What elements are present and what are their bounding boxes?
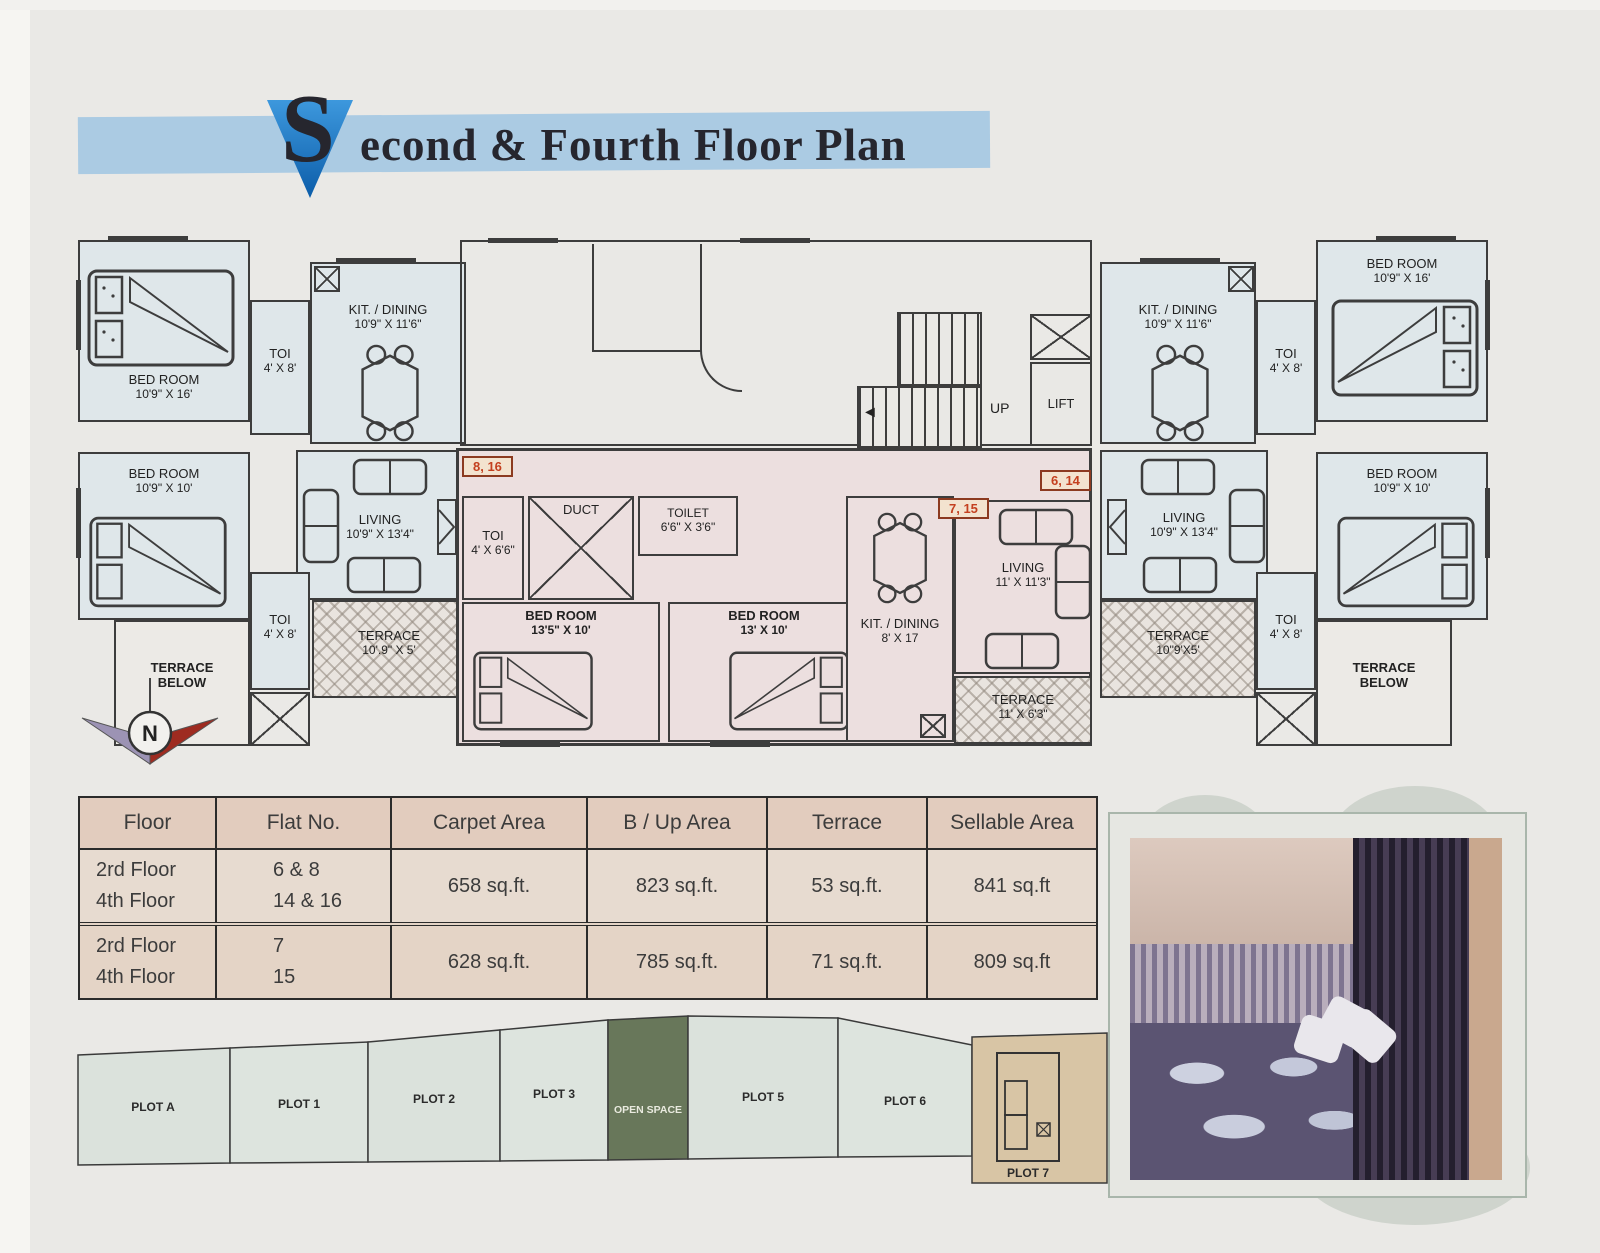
room-toilet-center: TOILET6'6" X 3'6" <box>638 496 738 556</box>
room-bedroom-right-top: BED ROOM10'9" X 16' <box>1316 240 1488 422</box>
duct-icon <box>1256 692 1316 746</box>
room-label: TOI4' X 8' <box>1258 612 1314 641</box>
sofa-icon <box>1142 556 1218 594</box>
stairs-direction-arrow-icon: ◄ <box>862 404 878 422</box>
bup-cell: 785 sq.ft. <box>588 926 768 998</box>
room-label: TOI4' X 6'6" <box>464 528 522 557</box>
window-mark <box>500 742 560 747</box>
stairs-upper-flight <box>897 312 982 386</box>
room-label: LIVING10'9" X 13'4" <box>1102 510 1266 539</box>
bed-icon <box>472 644 594 738</box>
room-toi-left-bottom: TOI4' X 8' <box>250 572 310 690</box>
sofa-icon <box>998 508 1074 546</box>
bed-icon <box>1330 298 1480 398</box>
room-bedroom-left-bottom: BED ROOM10'9" X 10' <box>78 452 250 620</box>
room-living-left: LIVING10'9" X 13'4" <box>296 450 464 600</box>
room-living-center: LIVING11' X 11'3" <box>954 500 1092 674</box>
terrace-right: TERRACE10"9'X5' <box>1100 600 1256 698</box>
col-header: Floor <box>80 798 217 848</box>
plot-label: PLOT 3 <box>533 1087 575 1101</box>
room-label: TOI4' X 8' <box>252 346 308 375</box>
open-space-label: OPEN SPACE <box>614 1104 682 1116</box>
corridor: ◄ UP LIFT <box>460 240 1092 446</box>
open-space-shape <box>608 1016 688 1160</box>
room-label: KIT. / DINING8' X 17 <box>848 616 952 645</box>
bup-cell: 823 sq.ft. <box>588 850 768 922</box>
scan-edge <box>0 0 30 1253</box>
window-mark <box>740 238 810 243</box>
window-mark <box>1376 236 1456 241</box>
window-mark <box>710 742 770 747</box>
plot-6-shape <box>838 1018 972 1157</box>
bed-icon <box>1336 510 1476 614</box>
scan-edge <box>0 0 1600 10</box>
table-header-row: Floor Flat No. Carpet Area B / Up Area T… <box>80 798 1096 848</box>
window-mark <box>108 236 188 241</box>
room-bedroom-right-bottom: BED ROOM10'9" X 10' <box>1316 452 1488 620</box>
page-title: econd & Fourth Floor Plan <box>360 119 907 171</box>
dining-table-icon <box>860 512 940 604</box>
duct-icon <box>1228 266 1254 292</box>
plot-5-shape <box>688 1016 838 1159</box>
sofa-icon <box>352 458 428 496</box>
room-bedroom-center-1: BED ROOM13'5" X 10' <box>462 602 660 742</box>
flat-number-flag: 6, 14 <box>1040 470 1091 491</box>
sellable-cell: 841 sq.ft <box>928 850 1096 922</box>
room-toi-right-bottom: TOI4' X 8' <box>1256 572 1316 690</box>
room-bedroom-center-2: BED ROOM13' X 10' <box>668 602 860 742</box>
room-label: BED ROOM13'5" X 10' <box>464 608 658 637</box>
carpet-cell: 658 sq.ft. <box>392 850 588 922</box>
room-toi-right-top: TOI4' X 8' <box>1256 300 1316 435</box>
bedroom-photo <box>1130 838 1502 1180</box>
table-row: 2rd Floor4th Floor 6 & 814 & 16 658 sq.f… <box>80 848 1096 922</box>
duct-icon <box>920 714 946 738</box>
sofa-icon <box>1140 458 1216 496</box>
corridor-alcove <box>592 244 702 352</box>
plot-label: PLOT 2 <box>413 1092 455 1106</box>
flat-number-flag: 8, 16 <box>462 456 513 477</box>
col-header: Terrace <box>768 798 928 848</box>
room-label: TOI4' X 8' <box>1258 346 1314 375</box>
room-label: BED ROOM10'9" X 16' <box>1318 256 1486 285</box>
duct-icon <box>314 266 340 292</box>
duct-icon <box>250 692 310 746</box>
sellable-cell: 809 sq.ft <box>928 926 1096 998</box>
bed-icon <box>728 644 850 738</box>
col-header: Sellable Area <box>928 798 1096 848</box>
room-label: KIT. / DINING10'9" X 11'6" <box>1102 302 1254 331</box>
compass-letter: N <box>142 721 158 746</box>
room-kitdining-center: KIT. / DINING8' X 17 <box>846 496 954 742</box>
room-kitdining-right: KIT. / DINING10'9" X 11'6" <box>1100 262 1256 444</box>
terrace-left: TERRACE10'.9" X 5' <box>312 600 466 698</box>
col-header: Carpet Area <box>392 798 588 848</box>
lift-label: LIFT <box>1032 396 1090 411</box>
window-mark <box>1140 258 1220 263</box>
terrace-center: TERRACE11' X 6'3" <box>954 676 1092 744</box>
duct-label: DUCT <box>530 502 632 517</box>
window-mark <box>488 238 558 243</box>
room-label: KIT. / DINING10'9" X 11'6" <box>312 302 464 331</box>
window-mark <box>1485 280 1490 350</box>
sofa-icon <box>984 632 1060 670</box>
lift: LIFT <box>1030 362 1092 446</box>
room-label: TOI4' X 8' <box>252 612 308 641</box>
photo-right-wall <box>1469 838 1502 1180</box>
dining-table-icon <box>1138 344 1222 442</box>
window-mark <box>76 280 81 350</box>
room-living-right: LIVING10'9" X 13'4" <box>1100 450 1268 600</box>
room-label: TERRACE11' X 6'3" <box>956 692 1090 721</box>
floor-cell: 2rd Floor4th Floor <box>80 926 217 998</box>
duct-box: DUCT <box>528 496 634 600</box>
flat-cell: 6 & 814 & 16 <box>217 850 392 922</box>
plot-label: PLOT A <box>131 1100 175 1114</box>
col-header: Flat No. <box>217 798 392 848</box>
plot-map: PLOT A PLOT 1 PLOT 2 PLOT 3 OPEN SPACE P… <box>75 1005 1115 1190</box>
table-row: 2rd Floor4th Floor 715 628 sq.ft. 785 sq… <box>80 922 1096 998</box>
door-arc <box>700 350 742 392</box>
dining-table-icon <box>348 344 432 442</box>
area-table: Floor Flat No. Carpet Area B / Up Area T… <box>78 796 1098 1000</box>
room-label: TOILET6'6" X 3'6" <box>640 506 736 534</box>
floor-cell: 2rd Floor4th Floor <box>80 850 217 922</box>
room-label: BED ROOM10'9" X 16' <box>80 372 248 401</box>
room-kitdining-left: KIT. / DINING10'9" X 11'6" <box>310 262 466 444</box>
room-label: BED ROOM13' X 10' <box>670 608 858 637</box>
bed-icon <box>86 268 236 368</box>
window-mark <box>76 488 81 558</box>
plot-label: PLOT 5 <box>742 1090 784 1104</box>
col-header: B / Up Area <box>588 798 768 848</box>
room-label: TERRACEBELOW <box>1318 660 1450 691</box>
logo-letter: S <box>281 80 335 177</box>
terrace-below-right: TERRACEBELOW <box>1316 620 1452 746</box>
window-mark <box>1485 488 1490 558</box>
photo-iron-screen <box>1353 838 1468 1180</box>
room-label: TERRACE10"9'X5' <box>1102 628 1254 657</box>
north-compass-icon: N <box>60 678 240 773</box>
plot-label: PLOT 6 <box>884 1094 926 1108</box>
room-toi-left-top: TOI4' X 8' <box>250 300 310 435</box>
carpet-cell: 628 sq.ft. <box>392 926 588 998</box>
room-label: LIVING10'9" X 13'4" <box>298 512 462 541</box>
window-mark <box>336 258 416 263</box>
brochure-page: S econd & Fourth Floor Plan BED ROOM10'9… <box>0 0 1600 1253</box>
flat-cell: 715 <box>217 926 392 998</box>
terrace-cell: 53 sq.ft. <box>768 850 928 922</box>
plot-label: PLOT 1 <box>278 1097 320 1111</box>
room-toi-center: TOI4' X 6'6" <box>462 496 524 600</box>
duct-icon <box>1030 314 1092 360</box>
room-bedroom-left-top: BED ROOM10'9" X 16' <box>78 240 250 422</box>
room-label: BED ROOM10'9" X 10' <box>80 466 248 495</box>
terrace-cell: 71 sq.ft. <box>768 926 928 998</box>
plot-label: PLOT 7 <box>1007 1166 1049 1180</box>
stairs-up-label: UP <box>990 400 1009 416</box>
room-label: TERRACE10'.9" X 5' <box>314 628 464 657</box>
room-label: BED ROOM10'9" X 10' <box>1318 466 1486 495</box>
flat-number-flag: 7, 15 <box>938 498 989 519</box>
bed-icon <box>88 510 228 614</box>
sofa-icon <box>346 556 422 594</box>
room-label: LIVING11' X 11'3" <box>956 560 1090 589</box>
